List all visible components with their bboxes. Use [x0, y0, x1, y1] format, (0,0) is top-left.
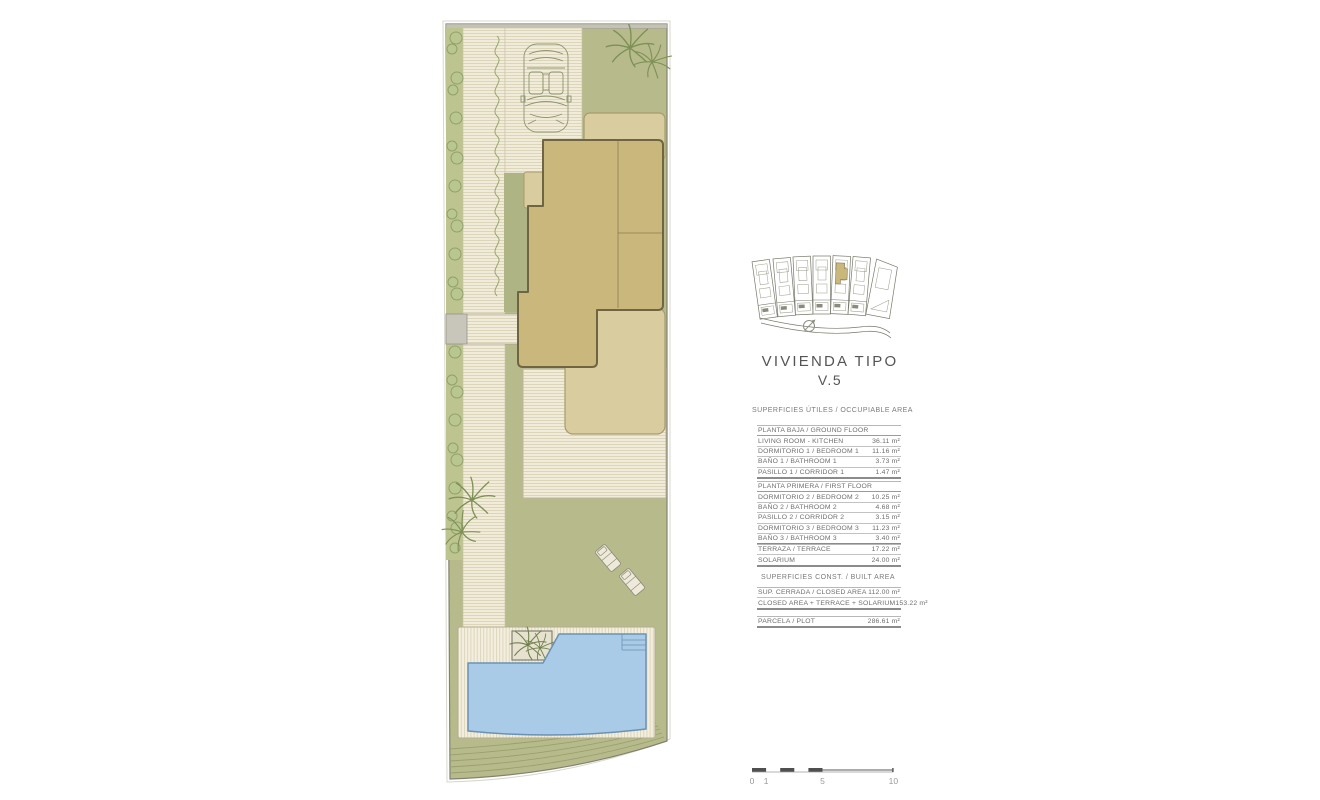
keyplan-highlighted-unit — [831, 256, 851, 315]
area-row: LIVING ROOM - KITCHEN 36.11 m² — [757, 436, 901, 446]
page-title: VIVIENDA TIPO V.5 — [742, 352, 918, 390]
title-line2: V.5 — [742, 371, 918, 390]
area-row: CLOSED AREA + TERRACE + SOLARIUM 153.22 … — [757, 598, 901, 609]
site-plan — [0, 0, 700, 800]
heading-built-area: SUPERFICIES CONST. / BUILT AREA — [752, 574, 904, 581]
table-terrace-solarium: TERRAZA / TERRACE 17.22 m² SOLARIUM 24.0… — [757, 544, 901, 567]
area-row: TERRAZA / TERRACE 17.22 m² — [757, 545, 901, 555]
scale-label-5: 5 — [820, 776, 825, 786]
area-row: PARCELA / PLOT 286.61 m² — [757, 617, 901, 628]
entry-pad — [446, 314, 467, 344]
table-plot: PARCELA / PLOT 286.61 m² — [757, 616, 901, 628]
keyplan-corner-unit — [866, 259, 898, 319]
north-arrow-icon — [804, 320, 816, 332]
area-row: PASILLO 2 / CORRIDOR 2 3.15 m² — [757, 513, 901, 523]
area-row: BAÑO 2 / BATHROOM 2 4.68 m² — [757, 503, 901, 513]
table-header: PLANTA BAJA / GROUND FLOOR — [757, 426, 901, 436]
scale-label-1: 1 — [764, 776, 769, 786]
area-row: DORMITORIO 1 / BEDROOM 1 11.16 m² — [757, 447, 901, 457]
scale-bar: 0 1 5 10 — [745, 760, 915, 794]
area-row: SUP. CERRADA / CLOSED AREA 112.00 m² — [757, 588, 901, 598]
area-row: PASILLO 1 / CORRIDOR 1 1.47 m² — [757, 468, 901, 479]
table-built-area: SUP. CERRADA / CLOSED AREA 112.00 m² CLO… — [757, 587, 901, 610]
area-row: DORMITORIO 3 / BEDROOM 3 11.23 m² — [757, 524, 901, 534]
keyplan-units — [752, 256, 898, 338]
title-line1: VIVIENDA TIPO — [742, 352, 918, 371]
table-header: PLANTA PRIMERA / FIRST FLOOR — [757, 482, 901, 492]
heading-occupiable-area: SUPERFICIES ÚTILES / OCCUPIABLE AREA — [752, 407, 904, 414]
area-row: SOLARIUM 24.00 m² — [757, 555, 901, 566]
keyplan — [748, 244, 898, 340]
scale-label-10: 10 — [889, 776, 899, 786]
table-first-floor: PLANTA PRIMERA / FIRST FLOOR DORMITORIO … — [757, 481, 901, 545]
plan-sheet: VIVIENDA TIPO V.5 SUPERFICIES ÚTILES / O… — [0, 0, 1320, 800]
porch — [524, 172, 544, 208]
area-row: DORMITORIO 2 / BEDROOM 2 10.25 m² — [757, 492, 901, 502]
area-row: BAÑO 1 / BATHROOM 1 3.73 m² — [757, 457, 901, 467]
scale-label-0: 0 — [750, 776, 755, 786]
table-ground-floor: PLANTA BAJA / GROUND FLOOR LIVING ROOM -… — [757, 425, 901, 479]
